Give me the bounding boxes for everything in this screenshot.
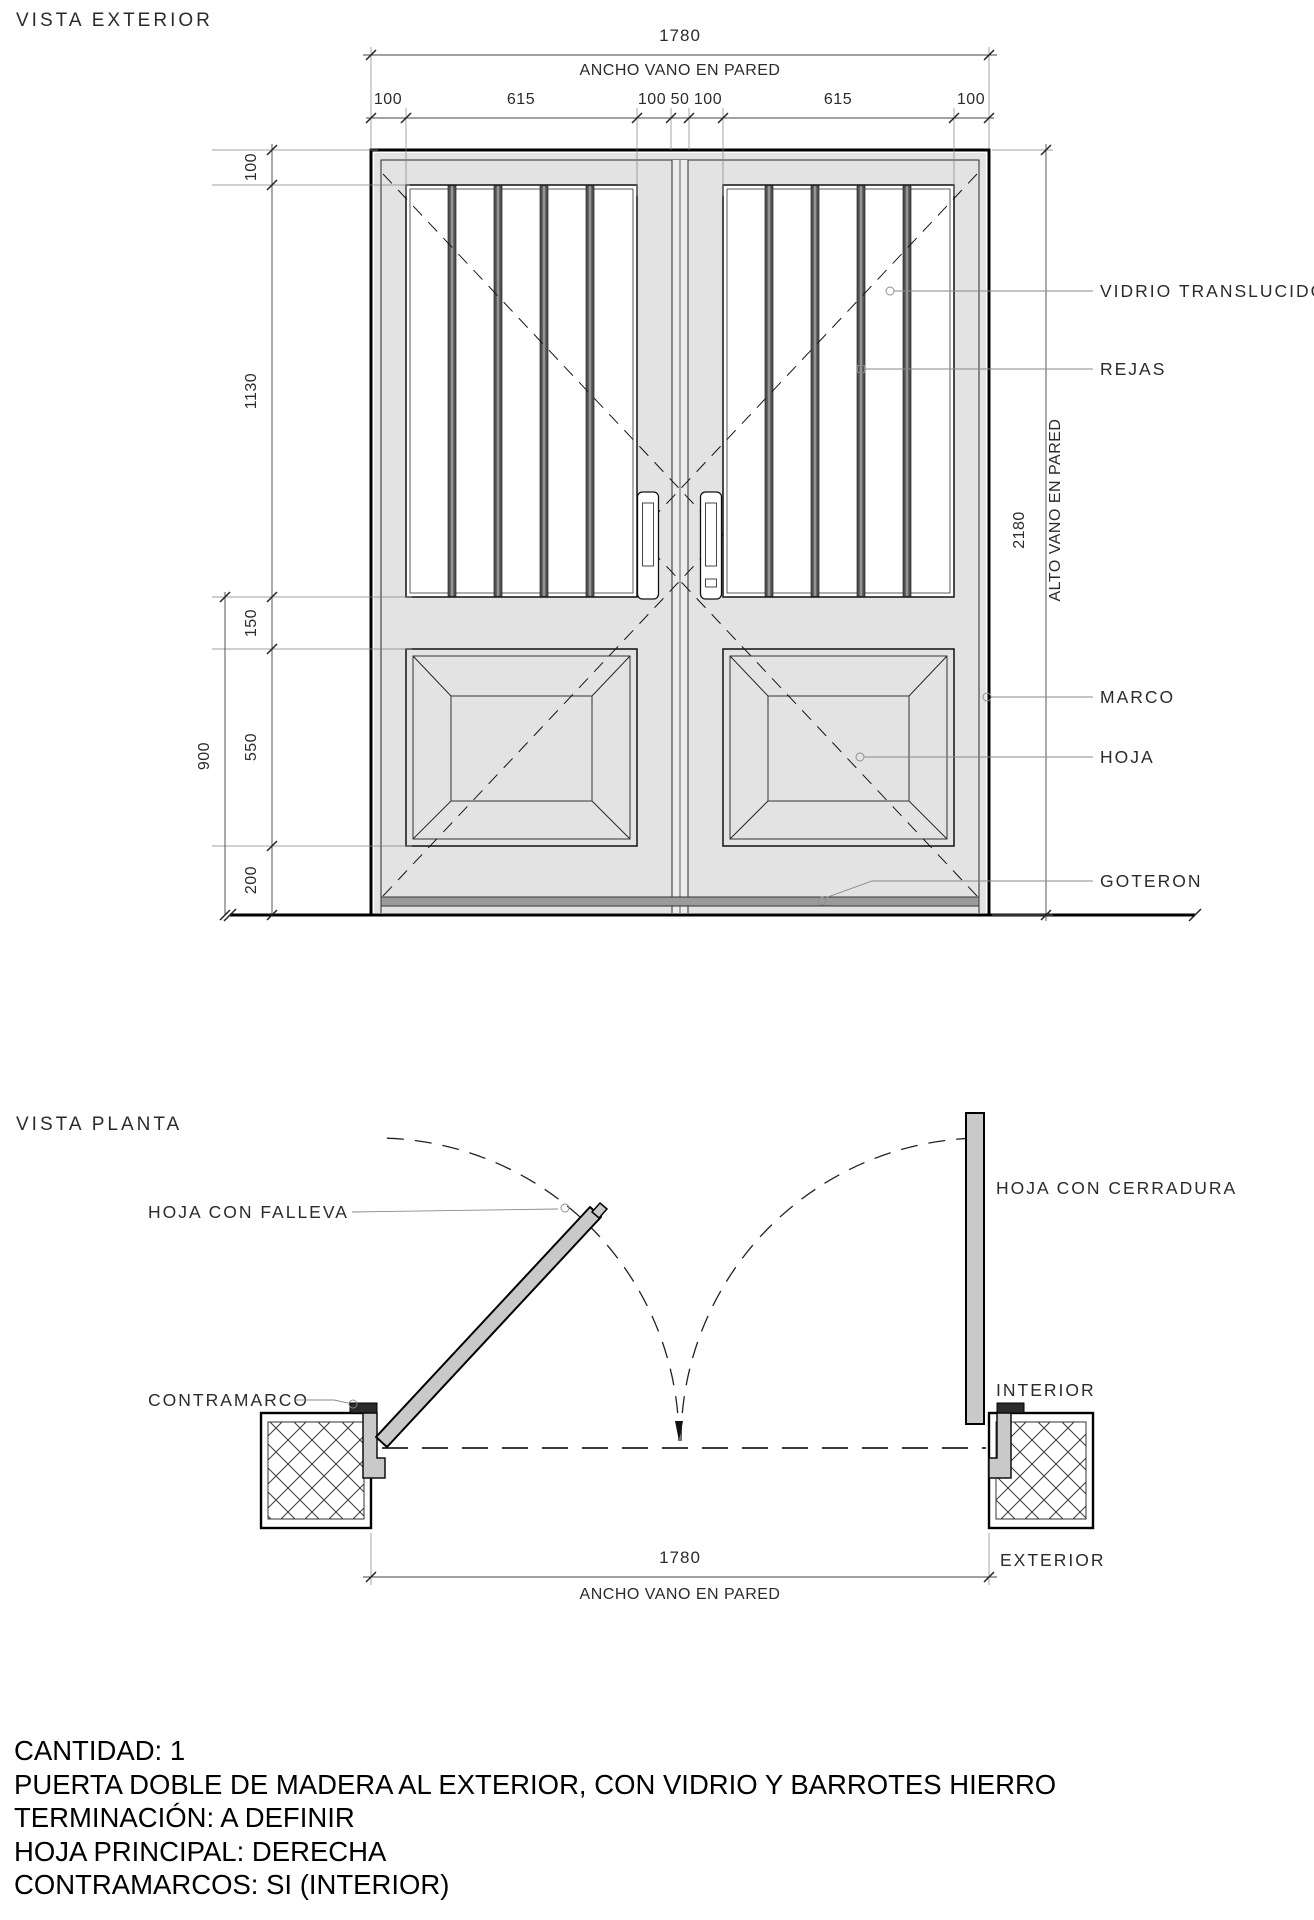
dim-left-1: 1130	[243, 373, 260, 409]
dim-left-0: 100	[243, 153, 260, 181]
keyhole-slot	[706, 579, 717, 587]
dim-seg-3: 50	[671, 91, 690, 108]
plan-dim-width-value: 1780	[659, 1548, 701, 1567]
dim-height-value: 2180	[1011, 511, 1028, 549]
dim-seg-1: 615	[507, 91, 535, 108]
dim-seg-6: 100	[957, 91, 985, 108]
dim-height-total: 2180 ALTO VANO EN PARED	[992, 144, 1064, 921]
left-leaf-label: HOJA CON FALLEVA	[148, 1202, 349, 1222]
lock-plate-right	[701, 492, 722, 599]
drawing-canvas: VISTA EXTERIOR	[0, 0, 1314, 1920]
plan-dim-width: 1780 ANCHO VANO EN PARED	[363, 1533, 997, 1603]
callout-drip-label: GOTERON	[1100, 871, 1202, 891]
dim-width-total-label: ANCHO VANO EN PARED	[580, 62, 781, 79]
note-main-leaf: HOJA PRINCIPAL: DERECHA	[14, 1835, 1294, 1869]
subframe-label: CONTRAMARCO	[148, 1390, 309, 1410]
callout-glass-label: VIDRIO TRANSLUCIDO	[1100, 281, 1314, 301]
interior-label: INTERIOR	[996, 1380, 1096, 1400]
plan-leaf-left	[376, 1203, 607, 1447]
callout-bars-label: REJAS	[1100, 359, 1166, 379]
dim-seg-2: 100	[638, 91, 666, 108]
plan-leaf-right	[966, 1113, 984, 1424]
note-description: PUERTA DOBLE DE MADERA AL EXTERIOR, CON …	[14, 1768, 1294, 1802]
dim-width-total-value: 1780	[659, 26, 701, 45]
flush-bolt-plate-left	[638, 492, 659, 599]
dim-seg-4: 100	[694, 91, 722, 108]
contramarco-tab-right	[997, 1403, 1024, 1413]
dim-seg-0: 100	[374, 91, 402, 108]
dim-left-3: 550	[243, 733, 260, 761]
drip-edge-strip	[381, 897, 979, 906]
right-leaf-label: HOJA CON CERRADURA	[996, 1178, 1237, 1198]
dim-left-2: 150	[243, 609, 260, 637]
dim-left-total: 900	[196, 592, 230, 920]
plan-title: VISTA PLANTA	[16, 1114, 182, 1135]
elevation-title: VISTA EXTERIOR	[16, 10, 213, 31]
callout-frame: MARCO	[983, 687, 1175, 707]
dim-height-label: ALTO VANO EN PARED	[1047, 419, 1064, 602]
dim-width-total: 1780 ANCHO VANO EN PARED	[363, 26, 997, 148]
wall-block-left	[261, 1413, 371, 1528]
dim-seg-5: 615	[824, 91, 852, 108]
plan-label-left-leaf: HOJA CON FALLEVA	[148, 1202, 569, 1222]
exterior-label: EXTERIOR	[1000, 1550, 1105, 1570]
swing-arcs	[377, 1138, 983, 1441]
drawing-sheet: VISTA EXTERIOR	[0, 0, 1314, 1920]
plan-dim-width-label: ANCHO VANO EN PARED	[580, 1586, 781, 1603]
note-finish: TERMINACIÓN: A DEFINIR	[14, 1801, 1294, 1835]
dim-left-total-value: 900	[196, 742, 213, 770]
glass-panel-left	[406, 185, 637, 597]
elevation-view: VISTA EXTERIOR	[16, 10, 1314, 921]
jamb-left	[363, 1413, 385, 1478]
glass-panel-right	[723, 185, 954, 597]
callout-leaf-label: HOJA	[1100, 747, 1155, 767]
dim-left-4: 200	[243, 866, 260, 894]
plan-label-subframe: CONTRAMARCO	[148, 1390, 357, 1410]
notes-block: CANTIDAD: 1 PUERTA DOBLE DE MADERA AL EX…	[14, 1734, 1294, 1902]
plan-view: VISTA PLANTA H	[16, 1113, 1237, 1603]
note-subframes: CONTRAMARCOS: SI (INTERIOR)	[14, 1868, 1294, 1902]
note-quantity: CANTIDAD: 1	[14, 1734, 1294, 1768]
callout-frame-label: MARCO	[1100, 687, 1175, 707]
